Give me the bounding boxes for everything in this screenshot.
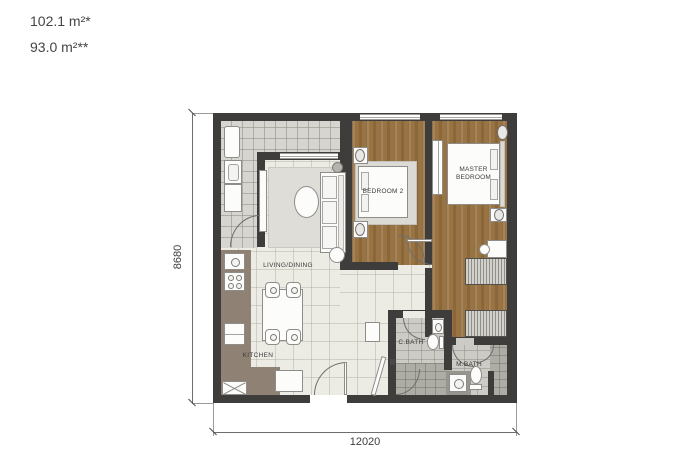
bedroom2-window	[360, 114, 420, 120]
chair-seat	[270, 287, 277, 294]
master-headboard	[500, 141, 505, 207]
mbath-label: M.BATH	[449, 361, 489, 369]
master-bedroom-label: MASTER BEDROOM	[448, 144, 499, 204]
hall-cabinet	[365, 322, 380, 342]
chair-seat	[291, 287, 298, 294]
lamp-icon	[494, 209, 504, 221]
plant-icon	[332, 162, 343, 173]
horizontal-dimension-label: 12020	[335, 436, 395, 448]
bedroom2-label: BEDROOM 2	[359, 167, 407, 217]
lamp-icon	[355, 149, 365, 162]
cabinet-divider	[225, 334, 244, 335]
shaft-box	[222, 381, 247, 395]
dining-chair	[286, 282, 301, 298]
washing-machine	[224, 126, 240, 158]
entry-door-opening	[310, 395, 347, 403]
bedroom-divider-wall	[425, 121, 432, 240]
kitchen-sink-basin	[231, 258, 240, 267]
hallway-floor	[340, 265, 432, 310]
horizontal-dimension-line	[213, 432, 517, 433]
floorplan-canvas: 102.1 m²* 93.0 m²**	[0, 0, 675, 450]
master-window	[440, 114, 502, 120]
chair-seat	[291, 334, 298, 341]
vertical-dimension-label: 8680	[172, 232, 184, 282]
utility-sink	[224, 160, 242, 184]
cbath-left-wall	[388, 310, 396, 395]
closet-divider	[438, 141, 439, 194]
apartment-plan: BEDROOM 2 MASTER BEDROOM	[213, 113, 517, 403]
desk-chair	[479, 244, 490, 255]
lamp-icon	[497, 125, 508, 140]
mbath-door-opening	[456, 338, 474, 345]
mbath-toilet-tank	[469, 384, 482, 390]
kitchen-cabinet	[224, 323, 245, 345]
stove	[224, 272, 245, 291]
mbath-sink-basin	[454, 379, 464, 389]
bedroom2-bed: BEDROOM 2	[358, 166, 408, 218]
cbath-toilet-tank	[439, 336, 444, 349]
extension-line	[192, 113, 213, 114]
kitchen-label: KITCHEN	[238, 352, 278, 360]
desk	[487, 240, 507, 258]
lamp-icon	[355, 223, 365, 236]
shower-head-icon	[390, 359, 395, 365]
utility-sink-basin	[228, 164, 239, 181]
mbath-sink	[449, 374, 467, 392]
bedroom2-bottom-wall	[340, 262, 398, 270]
wardrobe	[465, 258, 507, 285]
dining-chair	[265, 329, 280, 345]
utility-counter	[224, 184, 242, 212]
cbath-sink	[432, 319, 444, 334]
mbath-shower-partition	[488, 371, 494, 395]
mbath-top-wall	[444, 337, 507, 345]
burner-icon	[228, 283, 234, 289]
cbath-sink-basin	[435, 323, 442, 332]
kitchen-island-cabinet	[275, 370, 303, 392]
coffee-table	[294, 186, 319, 218]
master-door-leaf	[407, 239, 432, 242]
sofa-cushion	[322, 176, 337, 199]
master-bedroom-label-text: MASTER BEDROOM	[454, 166, 494, 183]
master-closet	[432, 140, 443, 195]
hall-corridor-wall	[425, 268, 432, 337]
wardrobe	[465, 310, 507, 337]
dining-chair	[265, 282, 280, 298]
entry-zone-floor	[340, 310, 388, 395]
dining-chair	[286, 329, 301, 345]
cbath-label: C.BATH	[391, 339, 431, 347]
sofa-cushion	[322, 226, 337, 249]
extension-line	[192, 403, 213, 404]
burner-icon	[236, 275, 242, 281]
area-figures: 102.1 m²* 93.0 m²**	[30, 8, 91, 60]
net-area-label: 93.0 m²**	[30, 34, 91, 60]
kitchen-sink	[224, 253, 245, 270]
side-table	[329, 247, 345, 263]
sofa	[320, 172, 346, 253]
gross-area-label: 102.1 m²*	[30, 8, 91, 34]
balcony-slider-window	[280, 153, 338, 159]
entry-door-leaf	[344, 362, 347, 395]
sofa-cushion	[322, 201, 337, 224]
cbath-door-opening	[403, 311, 425, 318]
tv-console	[259, 170, 267, 232]
chair-seat	[270, 334, 277, 341]
vertical-dimension-line	[192, 113, 193, 403]
burner-icon	[236, 283, 242, 289]
master-bed: MASTER BEDROOM	[447, 143, 500, 205]
sofa-back	[338, 175, 344, 250]
burner-icon	[228, 275, 234, 281]
living-dining-label: LIVING/DINING	[258, 262, 318, 270]
